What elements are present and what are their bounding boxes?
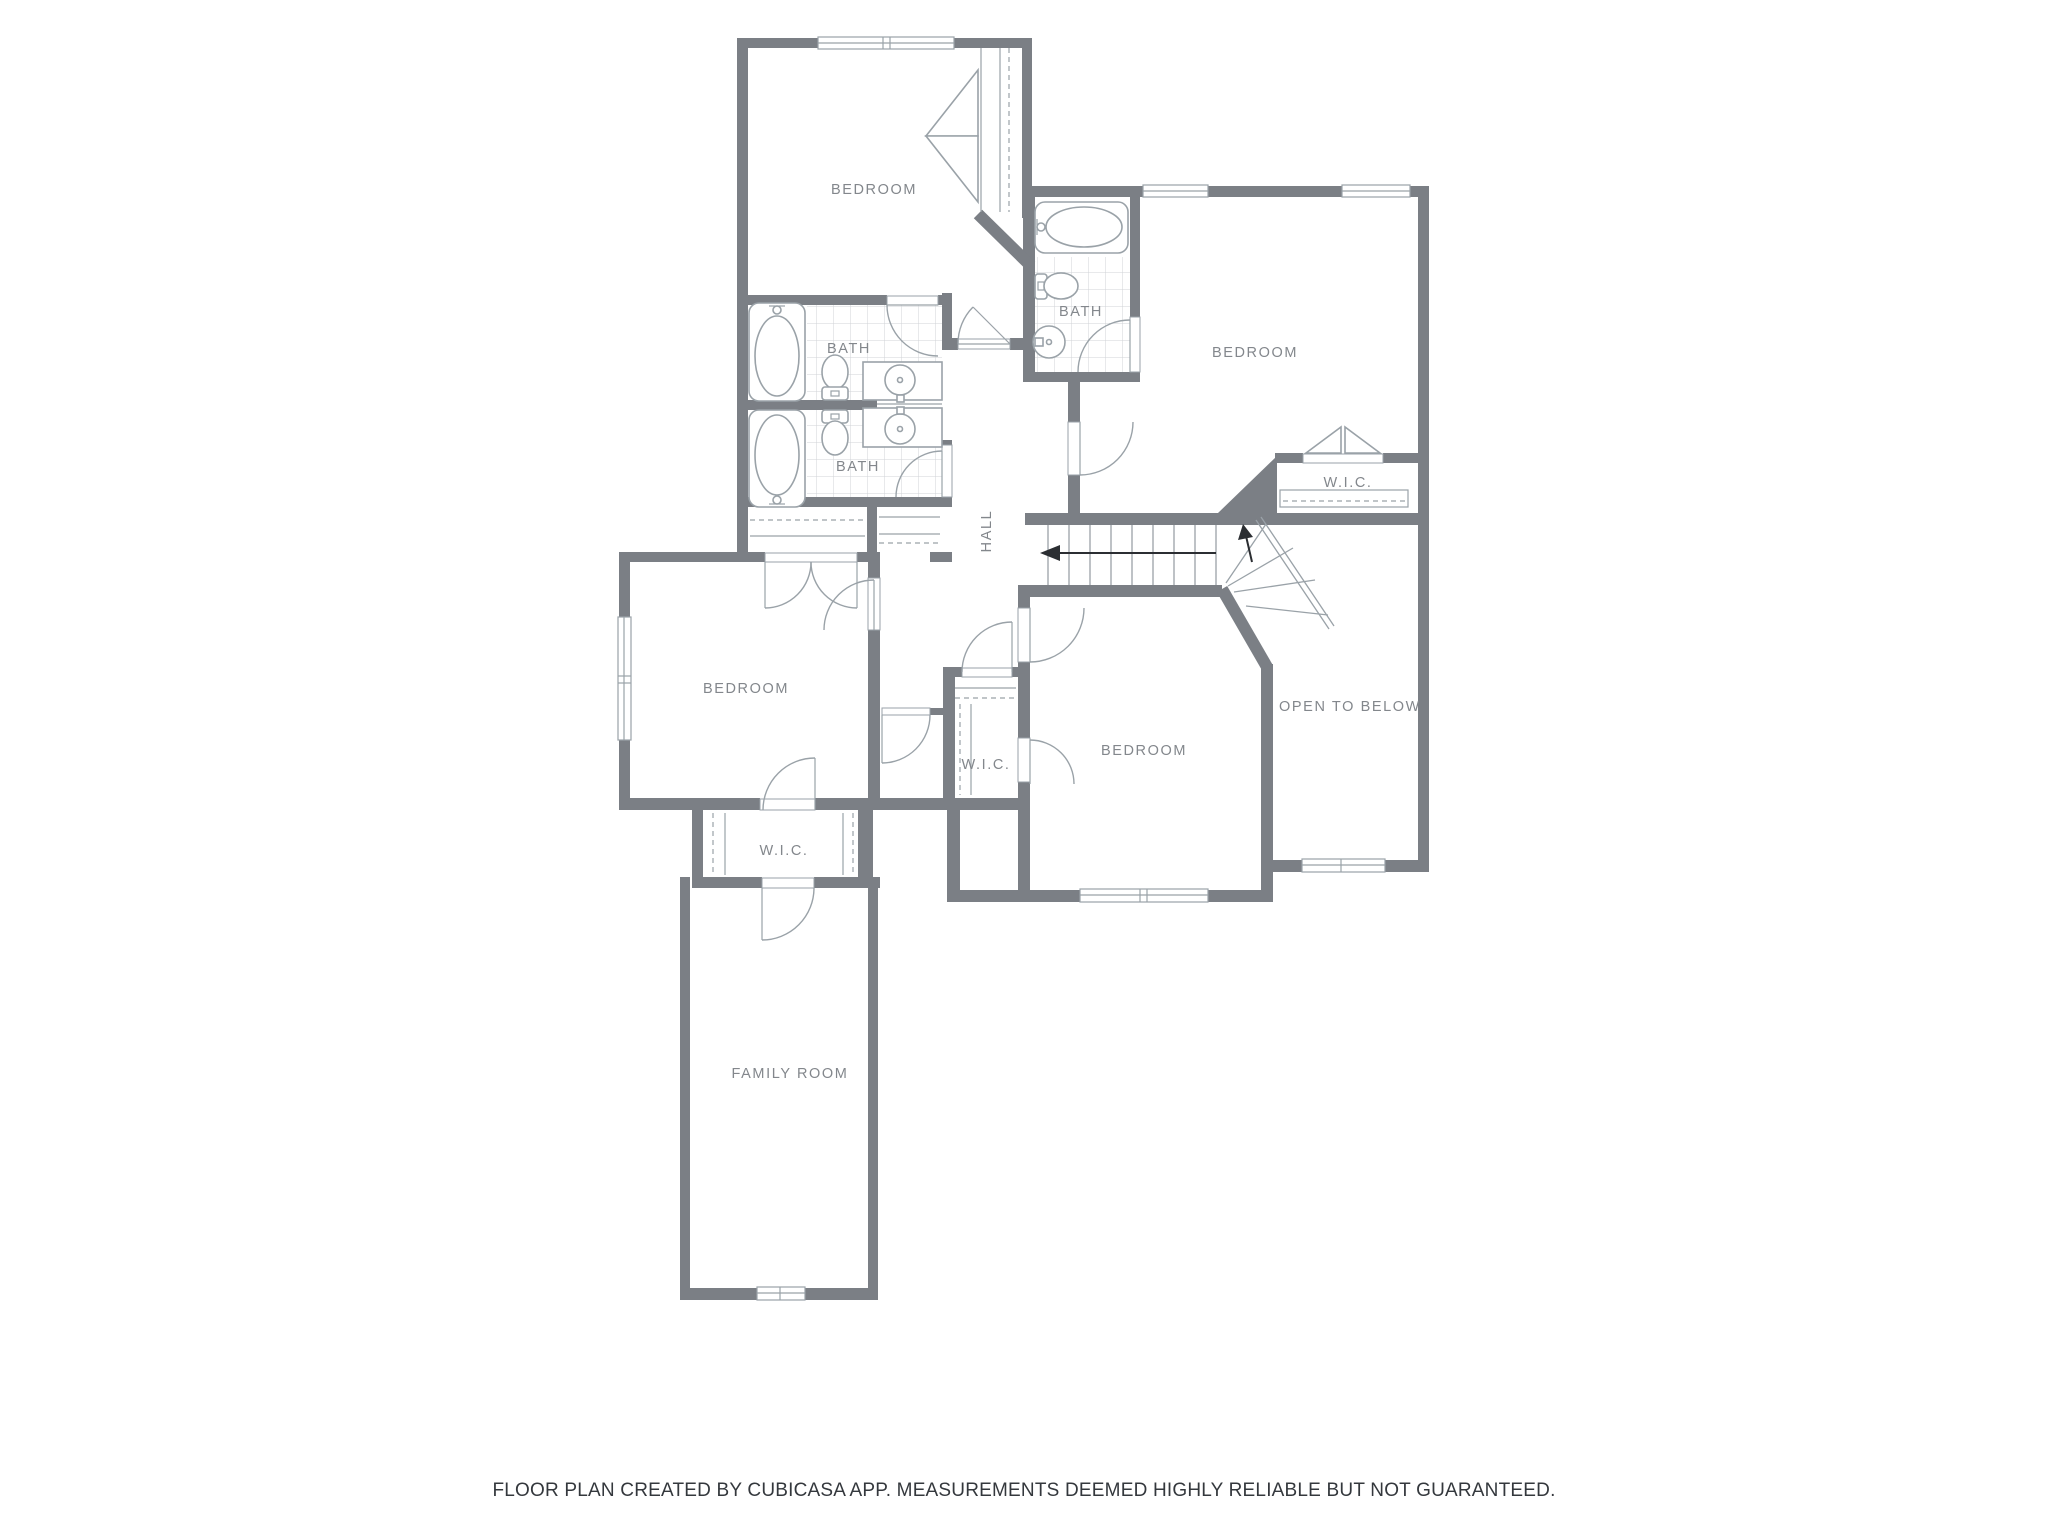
- bathtub-icon: [749, 303, 805, 401]
- room-label-family-room: FAMILY ROOM: [732, 1066, 849, 1082]
- room-label-bath-top-middle: BATH: [1059, 304, 1103, 320]
- toilet-icon: [1035, 273, 1078, 299]
- window-bedroom-center: [1080, 889, 1208, 902]
- window-bedroom-right-2: [1342, 185, 1410, 197]
- room-label-hall: HALL: [979, 510, 995, 553]
- sink-icon: [1033, 326, 1065, 358]
- footer-disclaimer: FLOOR PLAN CREATED BY CUBICASA APP. MEAS…: [492, 1480, 1555, 1501]
- bathtub-icon: [1035, 202, 1128, 253]
- room-label-wic-right: W.I.C.: [1323, 475, 1372, 491]
- toilet-icon: [822, 410, 848, 455]
- room-label-bath-left-lower: BATH: [836, 459, 880, 475]
- room-label-bedroom-left: BEDROOM: [703, 681, 789, 697]
- room-label-bedroom-top-left: BEDROOM: [831, 182, 917, 198]
- room-label-wic-left: W.I.C.: [759, 843, 808, 859]
- window-open-to-below: [1302, 859, 1385, 872]
- room-label-bath-left-upper: BATH: [827, 341, 871, 357]
- sink-vanity-icon: [863, 407, 942, 447]
- window-family-room: [757, 1287, 805, 1300]
- window-bedroom-top-left: [818, 37, 954, 49]
- bathtub-icon: [749, 410, 805, 507]
- room-label-open-to-below: OPEN TO BELOW: [1279, 699, 1421, 715]
- window-bedroom-left: [618, 617, 631, 740]
- floor-plan-page: BEDROOM BATH BATH BATH BEDROOM W.I.C. HA…: [0, 0, 2048, 1536]
- room-label-wic-center: W.I.C.: [961, 757, 1010, 773]
- room-label-bedroom-top-right: BEDROOM: [1212, 345, 1298, 361]
- room-label-bedroom-center: BEDROOM: [1101, 743, 1187, 759]
- window-bedroom-right-1: [1143, 185, 1208, 197]
- toilet-icon: [822, 355, 848, 400]
- floor-plan-canvas: BEDROOM BATH BATH BATH BEDROOM W.I.C. HA…: [0, 0, 2048, 1536]
- sink-vanity-icon: [863, 362, 942, 402]
